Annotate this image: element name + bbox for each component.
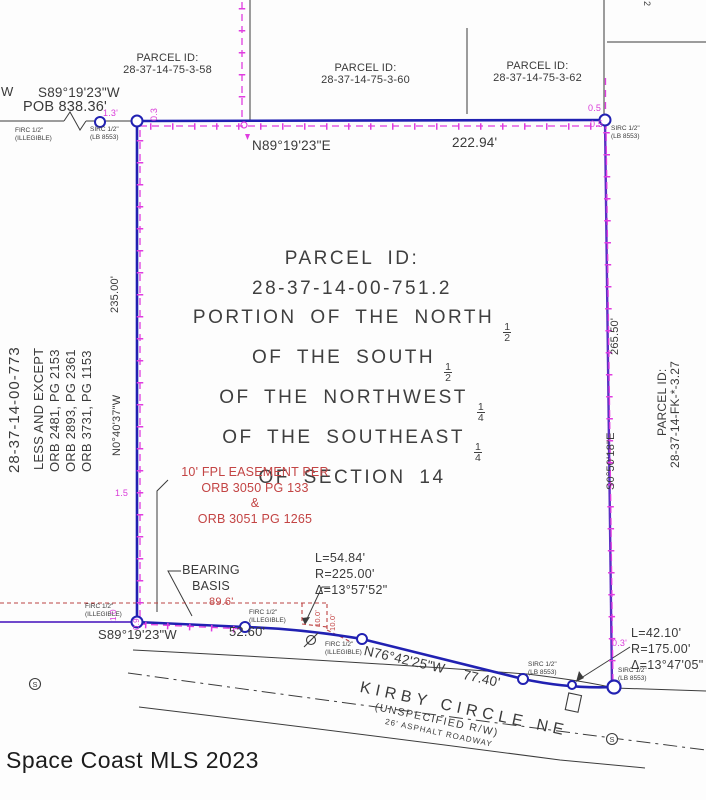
parcel-label-nw: PARCEL ID: 28-37-14-75-3-58: [100, 52, 235, 77]
fpl-easement-note: 10' FPL EASEMENT PER ORB 3050 PG 133 & O…: [160, 465, 350, 527]
firc-label-pob: FIRC 1/2" (ILLEGIBLE): [15, 127, 52, 142]
less-except-orb3: ORB 3731, PG 1153: [80, 350, 95, 472]
curve-1-data: L=54.84' R=225.00' Δ=13°57'52": [315, 551, 387, 598]
tie-bearing: S89°19'23"W: [38, 85, 120, 100]
south-distance: 52.60': [229, 625, 265, 640]
east-bearing: S0°50'18"E: [605, 432, 617, 490]
north-distance: 222.94': [452, 135, 497, 150]
parcel-title: PARCEL ID:: [298, 62, 433, 74]
parcel-label-north: PARCEL ID: 28-37-14-75-3-60: [298, 62, 433, 87]
sirc-label-se: SIRC 1/2" (LB 8553): [618, 667, 647, 682]
south-bearing: S89°19'23"W: [98, 628, 177, 643]
boundary-north: [137, 120, 605, 121]
easement-width-2: 10.0': [329, 614, 337, 631]
west-parcel-id: 28-37-14-00-773: [7, 346, 24, 473]
west-distance: 235.00': [109, 276, 121, 313]
fence-offset-west: 1.5: [115, 488, 128, 498]
fence-post-symbol: [241, 122, 247, 128]
east-parcel-id: 28-37-14-FK-*-3.27: [669, 361, 682, 468]
half-fraction: 12: [444, 362, 452, 383]
fence-offset-sw-a: 1.0: [110, 609, 119, 621]
easement-line-4: ORB 3051 PG 1265: [160, 512, 350, 528]
fence-offset-se: 0.3': [612, 638, 627, 648]
half-fraction: 12: [503, 322, 511, 343]
stray-digit: 2: [642, 1, 652, 6]
fence-offset-ne-a: 0.5: [588, 103, 601, 113]
manhole-symbols: S S: [30, 679, 618, 745]
easement-line-2: ORB 3050 PG 133: [160, 481, 350, 497]
curve-1-radius: R=225.00': [315, 567, 387, 583]
subject-desc-4: OF THE SOUTHEAST14: [162, 423, 542, 463]
east-distance: 265.50': [609, 318, 621, 355]
monument-nw-corner: [132, 116, 143, 127]
subject-parcel-description: PARCEL ID: 28-37-14-00-751.2 PORTION OF …: [162, 244, 542, 493]
fence-offset-nw-v: 0.3: [149, 108, 159, 121]
quarter-fraction: 14: [477, 402, 485, 423]
easement-line-1: 10' FPL EASEMENT PER: [160, 465, 350, 481]
curve2-leader-arrowhead: [576, 671, 584, 682]
easement-width-1: 10.0': [314, 610, 322, 627]
parcel-id: 28-37-14-75-3-60: [298, 74, 433, 86]
fence-offset-sw-b: 0.9: [133, 618, 142, 630]
fence-offset-nw: 1.3': [103, 108, 118, 118]
less-except-orb1: ORB 2481, PG 2153: [48, 349, 63, 472]
fence-offset-ne-b: 0.5: [590, 119, 603, 129]
bearing-basis-note: BEARING BASIS: [172, 562, 250, 594]
firc-label-south: FIRC 1/2" (ILLEGIBLE): [249, 609, 286, 624]
parcel-label-ne: PARCEL ID: 28-37-14-75-3-62: [470, 60, 605, 85]
manhole-letter: S: [32, 680, 37, 689]
sirc-label-curve: SIRC 1/2" (LB 8553): [528, 661, 557, 676]
parcel-id: 28-37-14-75-3-62: [470, 72, 605, 84]
sirc-label-ne: SIRC 1/2" (LB 8553): [611, 125, 640, 140]
manhole-letter: S: [609, 735, 614, 744]
pob-distance: POB 838.36': [23, 99, 107, 115]
boundary-east: [605, 120, 612, 686]
less-except-title: LESS AND EXCEPT: [32, 348, 47, 470]
firc-label-curve: FIRC 1/2" (ILLEGIBLE): [325, 641, 362, 656]
monument-se-corner: [608, 681, 621, 694]
tie-bearing-west-fragment: W: [1, 85, 13, 100]
parcel-title: PARCEL ID:: [100, 52, 235, 64]
survey-plat-map: S S PARCEL ID: 28-37-14-75-3-58 PARCEL I…: [0, 0, 706, 800]
west-bearing: N0°40'37"W: [111, 395, 123, 456]
curve-2-radius: R=175.00': [631, 642, 703, 658]
parcel-id: 28-37-14-75-3-58: [100, 64, 235, 76]
north-bearing: N89°19'23"E: [252, 138, 331, 153]
monument-sirc-curve: [568, 681, 576, 689]
curve-1-delta: Δ=13°57'52": [315, 583, 387, 599]
sirc-label-nw: SIRC 1/2" (LB 8553): [90, 126, 119, 141]
easement-line-3: &: [160, 496, 350, 512]
less-except-orb2: ORB 2893, PG 2361: [64, 349, 79, 472]
monument-tangent-point: [518, 674, 528, 684]
subject-title: PARCEL ID:: [162, 244, 542, 274]
subject-desc-2: OF THE SOUTH12: [162, 343, 542, 383]
curve-1-length: L=54.84': [315, 551, 387, 567]
subject-desc-3: OF THE NORTHWEST14: [162, 383, 542, 423]
fence-arrow-symbol: [245, 134, 250, 140]
curve-2-length: L=42.10': [631, 626, 703, 642]
mls-watermark: Space Coast MLS 2023: [6, 748, 259, 774]
parcel-title: PARCEL ID:: [470, 60, 605, 72]
quarter-fraction: 14: [474, 442, 482, 463]
structure-symbol: [565, 693, 581, 712]
easement-length: 89.6': [209, 596, 234, 608]
subject-desc-1: PORTION OF THE NORTH12: [162, 303, 542, 343]
subject-id: 28-37-14-00-751.2: [162, 274, 542, 304]
